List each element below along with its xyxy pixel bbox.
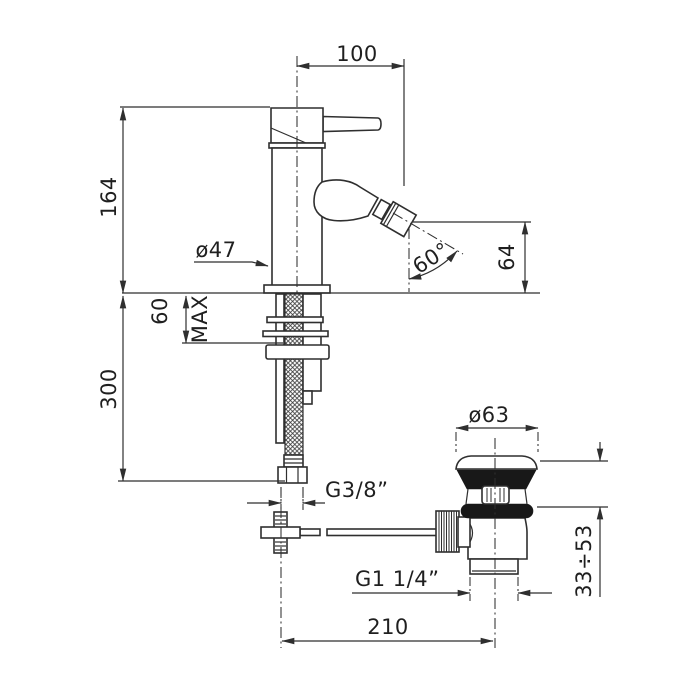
washer-upper xyxy=(267,317,323,323)
pop-up-waste-group xyxy=(456,456,537,574)
technical-drawing-canvas: 100 164 300 60 MAX ø47 64 60° G3/8” ø63 xyxy=(0,0,700,700)
dim-60-deck-thickness: 60 xyxy=(148,297,172,325)
dim-164-body-height: 164 xyxy=(97,176,121,218)
horizontal-rod xyxy=(327,529,437,536)
dim-210-drain-offset: 210 xyxy=(367,615,409,639)
waste-seal-ring xyxy=(461,504,533,518)
dim-33-53-clamp-range: 33÷53 xyxy=(572,524,596,598)
dim-d47-body-diameter: ø47 xyxy=(195,238,236,262)
dim-max-label: MAX xyxy=(188,295,212,343)
dim-d63-flange-diameter: ø63 xyxy=(468,403,509,427)
bidet-mixer-technical-drawing: 100 164 300 60 MAX ø47 64 60° G3/8” ø63 xyxy=(0,0,700,700)
dim-g38-supply-thread: G3/8” xyxy=(325,478,388,502)
waste-body xyxy=(468,518,527,559)
second-hose xyxy=(303,294,321,391)
waste-side-port xyxy=(458,517,470,547)
second-hose-end xyxy=(303,391,312,404)
washer-lower xyxy=(263,331,328,337)
lever-handle xyxy=(323,117,381,132)
mounting-nut xyxy=(266,345,329,359)
hose-ferrule xyxy=(284,455,303,467)
dim-100-spout-projection: 100 xyxy=(336,42,378,66)
waste-flange-rim xyxy=(456,456,537,469)
dim-300-hose-length: 300 xyxy=(97,368,121,410)
rod-stub xyxy=(300,529,320,536)
waste-tailpipe xyxy=(470,559,518,574)
dim-g114-waste-thread: G1 1/4” xyxy=(355,567,440,591)
dim-64-outlet-height: 64 xyxy=(495,243,519,271)
